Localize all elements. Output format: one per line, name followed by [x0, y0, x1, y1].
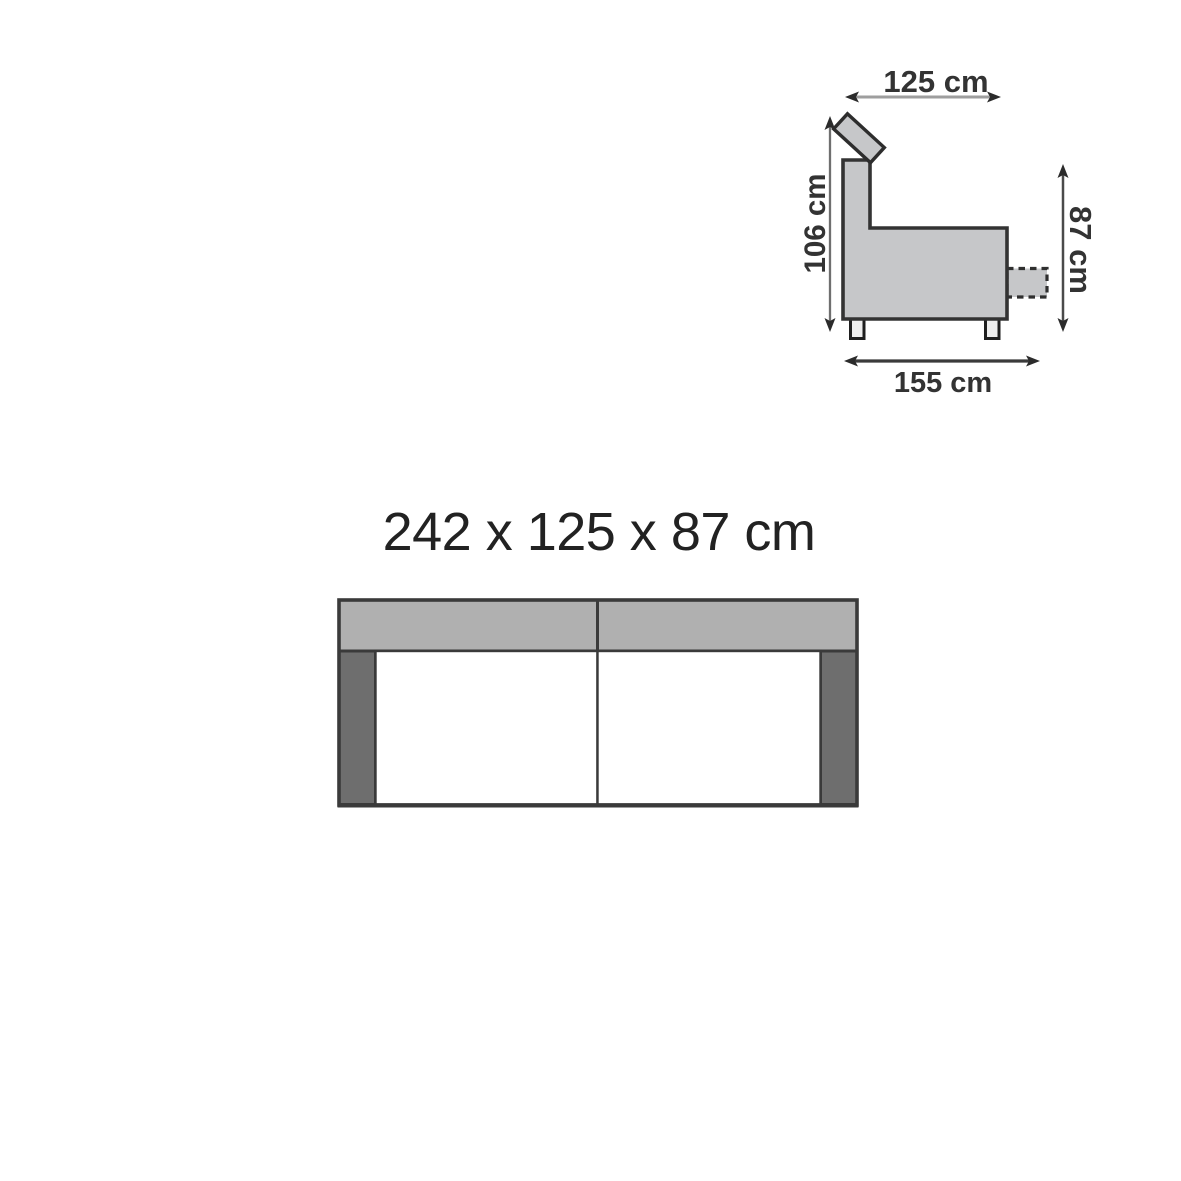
svg-text:125 cm: 125 cm	[883, 64, 988, 99]
svg-text:155 cm: 155 cm	[894, 367, 992, 399]
svg-text:242 x 125 x 87 cm: 242 x 125 x 87 cm	[383, 502, 816, 562]
svg-text:87 cm: 87 cm	[1063, 206, 1098, 294]
svg-text:106 cm: 106 cm	[799, 173, 832, 273]
